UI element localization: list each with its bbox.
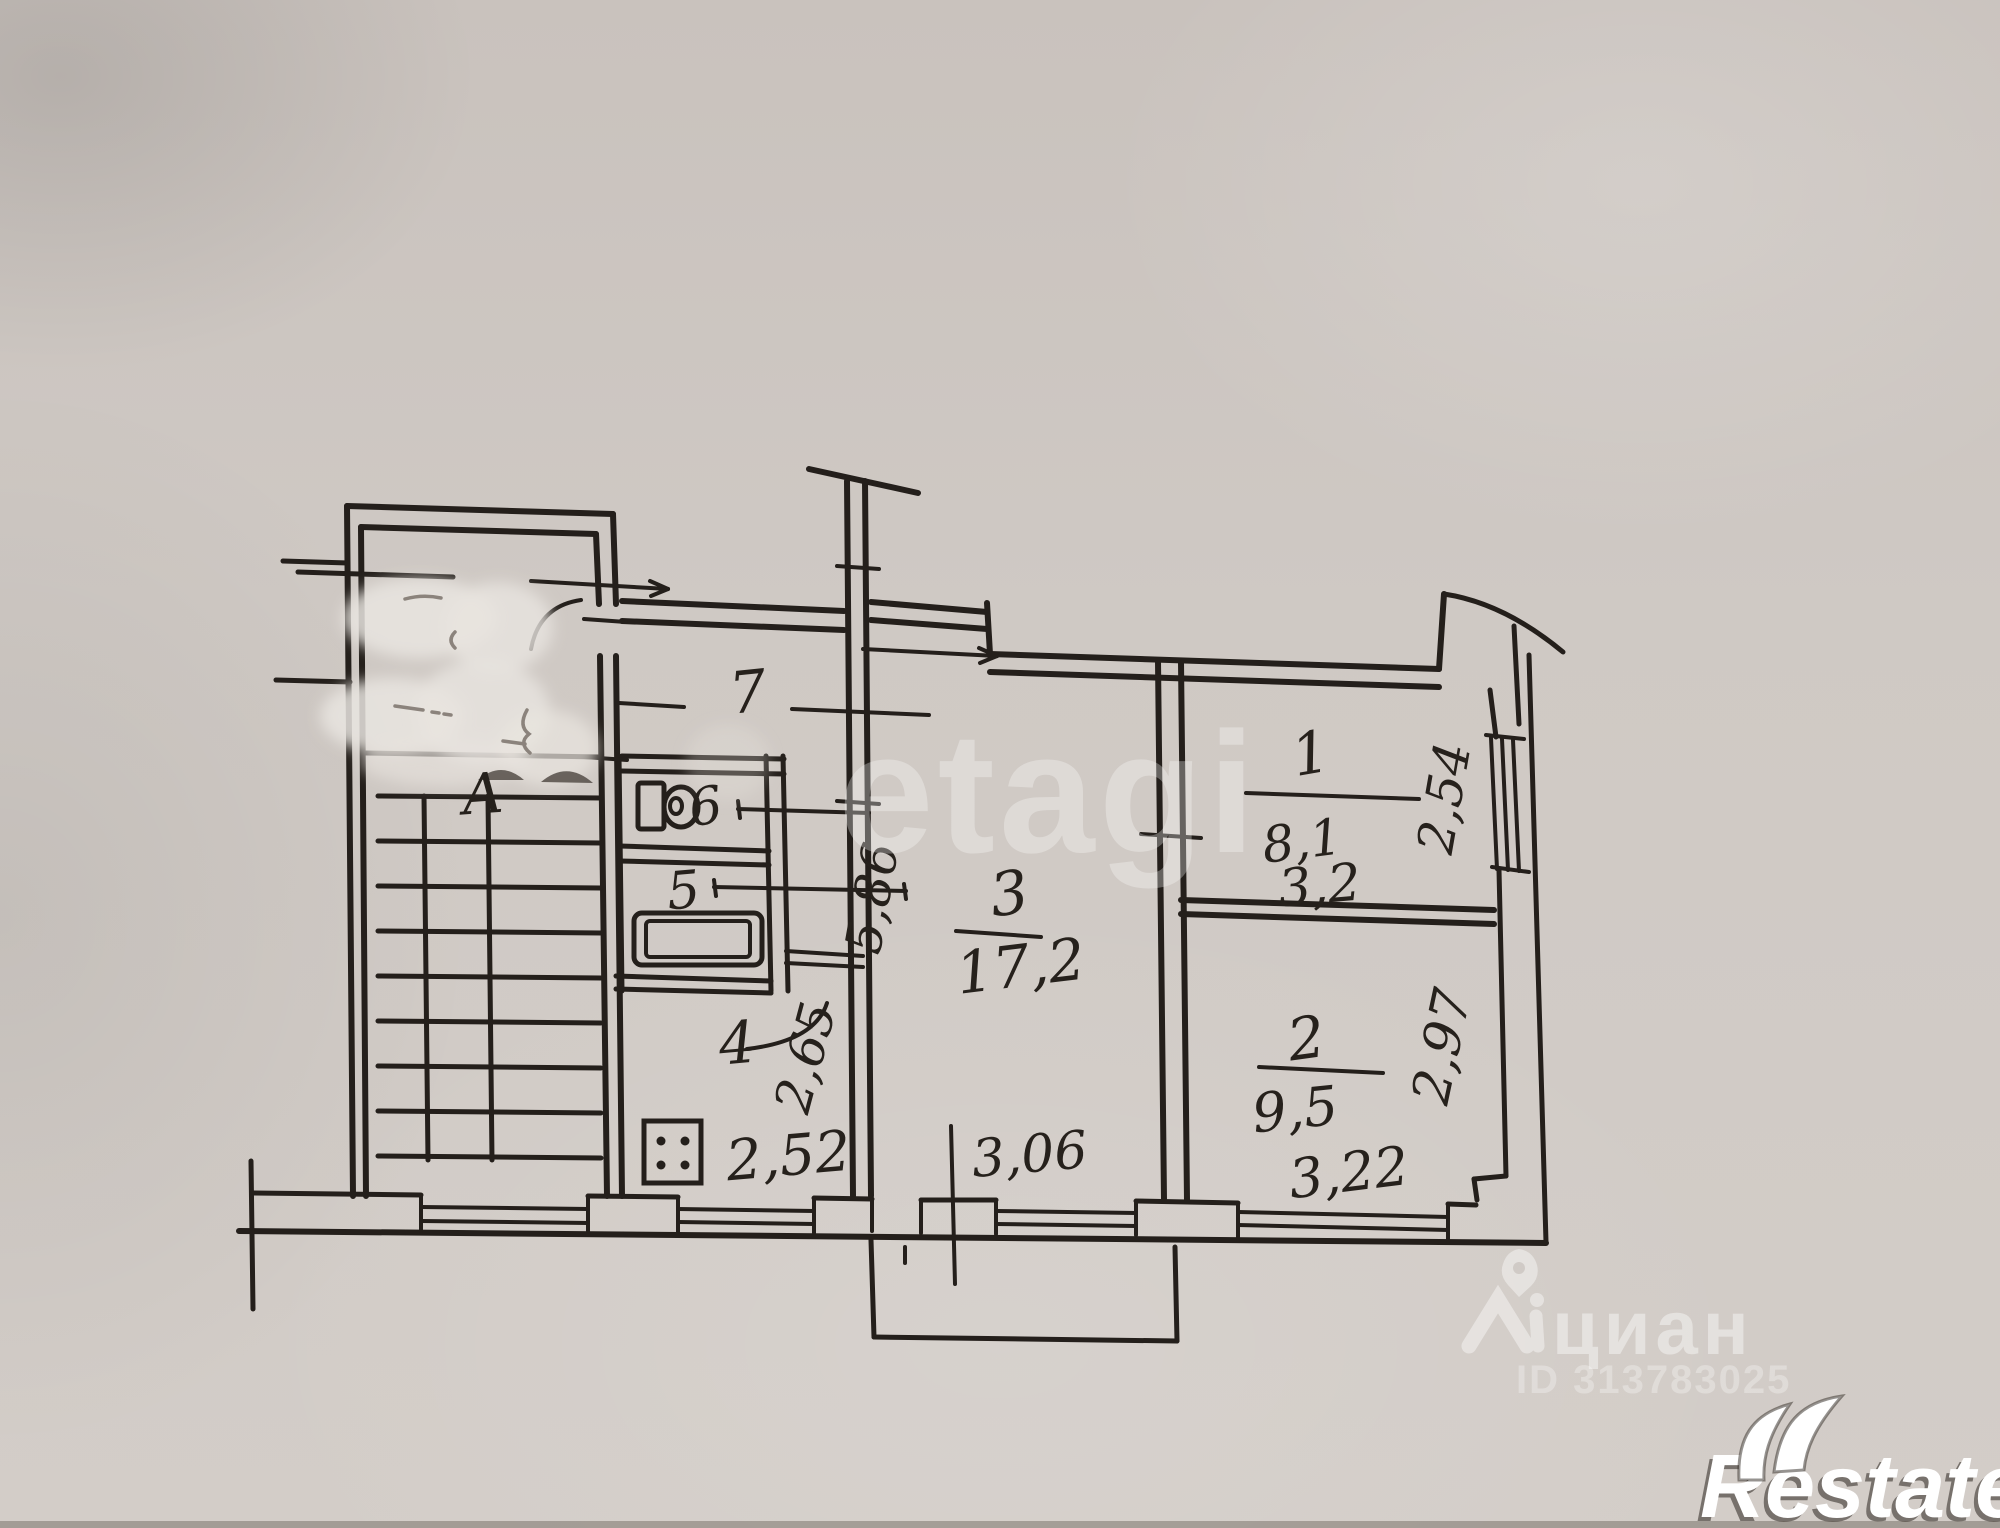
kitchen-width-dim: 2,52 [722,1119,853,1195]
photo-bottom-edge [0,1521,2000,1528]
stove-icon [644,1121,701,1183]
room-2-width-dim: 3,22 [1285,1134,1412,1211]
cian-id-text: ID 313783025 [1516,1358,1791,1402]
floorplan-drawing: 7 6 5 4 А 3 17,2 3,06 5,86 1 8,1 3,2 2,5… [0,0,2000,1528]
restate-watermark: Restate Restate [1696,1396,2000,1528]
stairwell-letter: А [455,761,506,829]
room-1-number: 1 [1286,717,1334,790]
cian-logo-icon [1469,1293,1544,1346]
balcony [871,1240,1177,1341]
etagi-watermark: etagi [838,697,1259,889]
room-2-area: 9,5 [1249,1074,1341,1146]
room-2-depth-dim: 2,97 [1401,983,1484,1111]
corridor-number: 7 [726,656,770,727]
room-3-width-dim: 3,06 [969,1120,1090,1190]
floorplan-photo: 7 6 5 4 А 3 17,2 3,06 5,86 1 8,1 3,2 2,5… [0,0,2000,1528]
bathtub-icon [634,913,762,965]
room-3-area: 17,2 [952,925,1088,1008]
bathroom-number: 5 [664,860,702,923]
cian-pin-icon [1502,1249,1538,1297]
room-2-number: 2 [1282,1002,1329,1075]
cian-watermark: циан ID 313783025 [1469,1249,1791,1402]
room-1-width-dim: 3,2 [1276,853,1364,920]
room-1-depth-dim: 2,54 [1406,738,1483,859]
erased-patches [320,578,770,800]
right-wall [1474,690,1529,1200]
kitchen-depth-dim: 2,65 [763,996,848,1120]
kitchen-number: 4 [715,1008,759,1079]
